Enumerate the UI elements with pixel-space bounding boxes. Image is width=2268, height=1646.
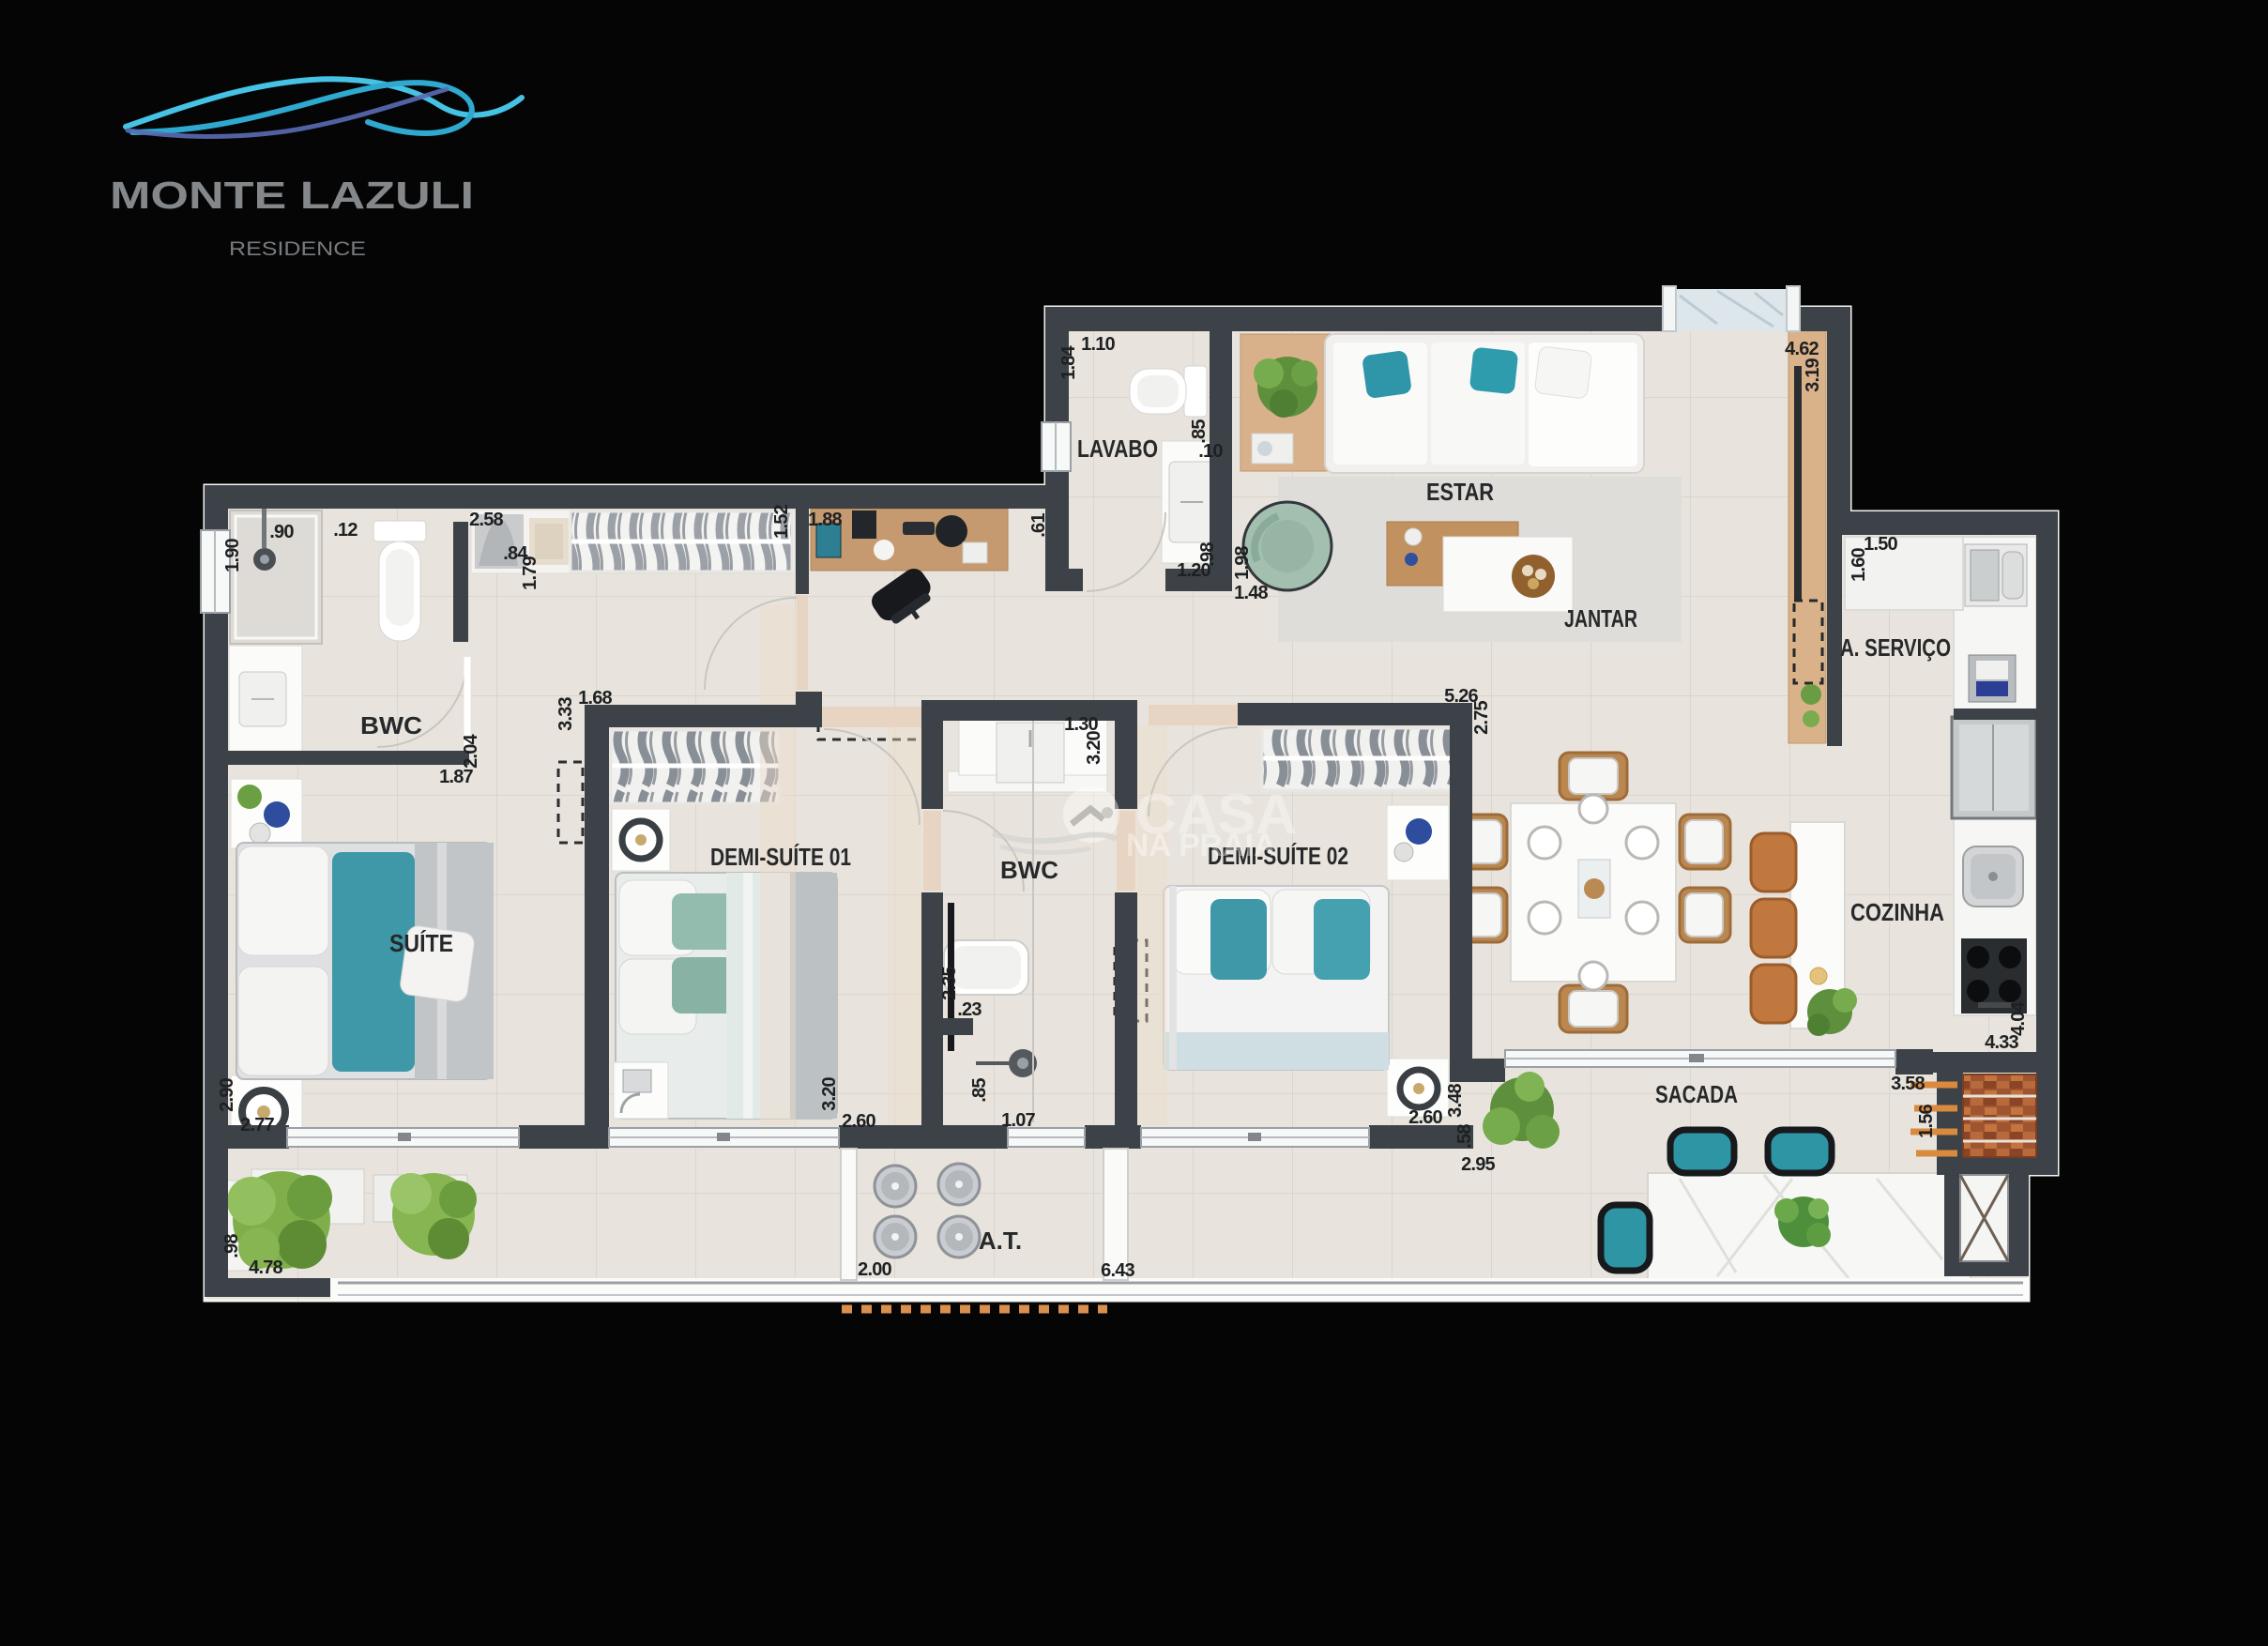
svg-text:1.56: 1.56 xyxy=(1916,1104,1937,1137)
svg-text:2.00: 2.00 xyxy=(858,1259,891,1280)
svg-text:1.87: 1.87 xyxy=(439,767,473,787)
svg-text:1.98: 1.98 xyxy=(1232,545,1253,579)
svg-text:NA PRAIA: NA PRAIA xyxy=(1126,828,1276,863)
svg-text:1.07: 1.07 xyxy=(1001,1110,1035,1131)
svg-text:6.43: 6.43 xyxy=(1101,1260,1134,1281)
svg-text:2.77: 2.77 xyxy=(240,1115,274,1135)
svg-text:1.88: 1.88 xyxy=(808,510,842,530)
svg-text:BWC: BWC xyxy=(360,711,422,739)
svg-text:1.79: 1.79 xyxy=(520,556,540,589)
svg-text:SACADA: SACADA xyxy=(1655,1080,1738,1108)
svg-text:A.T.: A.T. xyxy=(979,1227,1022,1255)
svg-text:2.04: 2.04 xyxy=(461,733,481,768)
svg-text:.98: .98 xyxy=(221,1234,242,1258)
svg-text:A. SERVIÇO: A. SERVIÇO xyxy=(1840,633,1951,662)
svg-text:3.48: 3.48 xyxy=(1445,1083,1466,1117)
svg-text:2.90: 2.90 xyxy=(217,1077,237,1111)
svg-text:MONTE LAZULI: MONTE LAZULI xyxy=(110,174,474,217)
svg-text:1.52: 1.52 xyxy=(771,504,792,538)
svg-text:COZINHA: COZINHA xyxy=(1850,898,1944,926)
svg-text:.61: .61 xyxy=(1028,513,1049,538)
svg-text:.58: .58 xyxy=(1454,1124,1475,1149)
svg-text:.85: .85 xyxy=(969,1078,990,1103)
svg-text:LAVABO: LAVABO xyxy=(1077,434,1158,463)
svg-text:2.60: 2.60 xyxy=(842,1111,875,1132)
svg-text:1.48: 1.48 xyxy=(1234,583,1268,603)
svg-text:4.78: 4.78 xyxy=(249,1257,282,1278)
svg-text:2.75: 2.75 xyxy=(1471,700,1492,734)
svg-text:1.68: 1.68 xyxy=(578,688,612,709)
svg-text:4.04: 4.04 xyxy=(2008,1000,2029,1035)
svg-text:3.33: 3.33 xyxy=(556,696,576,730)
svg-text:1.10: 1.10 xyxy=(1081,334,1115,355)
svg-text:1.90: 1.90 xyxy=(222,538,243,572)
svg-text:JANTAR: JANTAR xyxy=(1564,604,1637,632)
svg-text:ESTAR: ESTAR xyxy=(1426,478,1494,506)
svg-text:1.60: 1.60 xyxy=(1849,547,1869,581)
svg-text:BWC: BWC xyxy=(1000,856,1058,884)
svg-text:3.20: 3.20 xyxy=(1084,730,1104,764)
svg-text:2.95: 2.95 xyxy=(1461,1154,1495,1175)
svg-text:.85: .85 xyxy=(1189,419,1210,444)
svg-text:.98: .98 xyxy=(1197,542,1218,567)
svg-text:3.20: 3.20 xyxy=(819,1076,840,1110)
svg-text:RESIDENCE: RESIDENCE xyxy=(229,238,366,260)
svg-text:4.62: 4.62 xyxy=(1785,339,1819,359)
svg-text:2.60: 2.60 xyxy=(1408,1107,1442,1128)
svg-text:2.58: 2.58 xyxy=(469,510,503,530)
svg-text:DEMI-SUÍTE 01: DEMI-SUÍTE 01 xyxy=(710,843,851,871)
svg-text:3.58: 3.58 xyxy=(1891,1074,1925,1094)
svg-text:1.84: 1.84 xyxy=(1058,344,1079,379)
svg-text:2.35: 2.35 xyxy=(939,966,960,999)
svg-text:.23: .23 xyxy=(957,999,982,1020)
svg-text:.90: .90 xyxy=(269,522,294,542)
svg-text:3.19: 3.19 xyxy=(1803,358,1823,391)
svg-text:SUÍTE: SUÍTE xyxy=(389,929,453,957)
svg-text:.12: .12 xyxy=(333,520,358,541)
